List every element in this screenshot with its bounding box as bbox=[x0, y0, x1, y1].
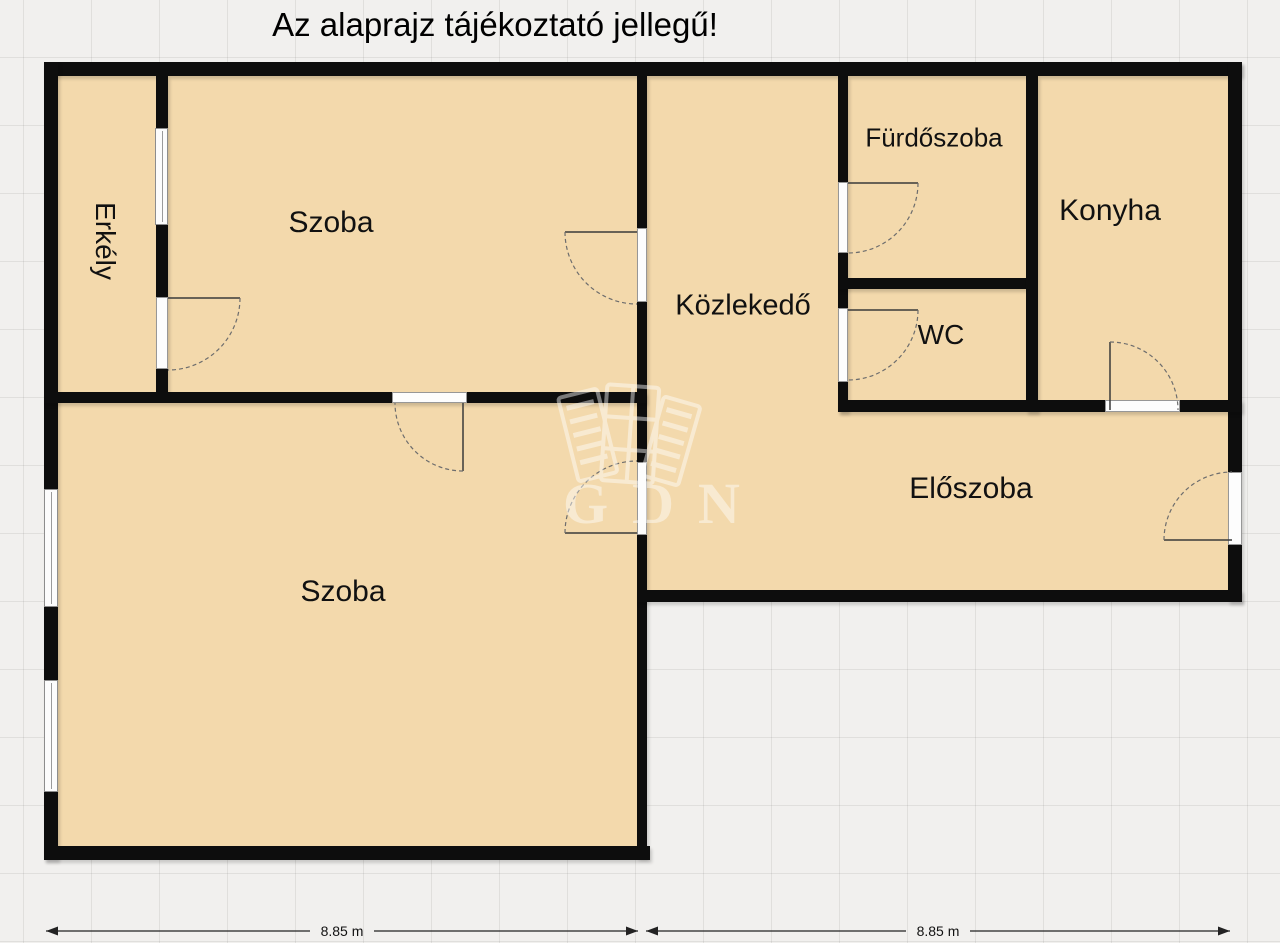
dimension-arrowheads bbox=[46, 927, 1230, 936]
door-threshold-szoba-mid bbox=[392, 392, 467, 403]
window-glass-line bbox=[162, 131, 163, 222]
arrow-left-icon bbox=[646, 927, 658, 936]
arrow-right-icon bbox=[626, 927, 638, 936]
door-threshold-erkely bbox=[156, 297, 168, 369]
wall-eloszoba-bottom bbox=[637, 590, 1242, 602]
wall-mid-horizontal bbox=[44, 392, 646, 403]
disclaimer-title: Az alaprajz tájékoztató jellegű! bbox=[272, 6, 718, 44]
door-threshold-szoba-top bbox=[637, 228, 647, 302]
wall-outer-top bbox=[44, 62, 1242, 76]
room-label-konyha: Konyha bbox=[1059, 194, 1161, 228]
arrow-left-icon bbox=[46, 927, 58, 936]
room-label-kozlekedo: Közlekedő bbox=[675, 290, 810, 323]
floorplan-canvas: Az alaprajz tájékoztató jellegű! Erkély … bbox=[0, 0, 1280, 943]
room-label-erkely: Erkély bbox=[89, 202, 121, 280]
window-erkely bbox=[155, 128, 168, 225]
dimension-label-left: 8.85 m bbox=[321, 923, 364, 939]
room-label-furdoszoba: Fürdőszoba bbox=[865, 123, 1002, 154]
door-threshold-konyha bbox=[1105, 400, 1180, 412]
room-label-wc: WC bbox=[918, 319, 965, 351]
window-szoba-left-2 bbox=[44, 680, 58, 792]
wall-bath-wc-divider bbox=[838, 278, 1026, 289]
door-threshold-furdoszoba bbox=[838, 182, 848, 253]
room-label-eloszoba: Előszoba bbox=[909, 472, 1032, 506]
door-threshold-szoba-bottom bbox=[637, 462, 647, 535]
room-label-szoba-bottom: Szoba bbox=[300, 575, 385, 609]
window-szoba-left-1 bbox=[44, 489, 58, 607]
door-threshold-entry bbox=[1228, 472, 1242, 545]
wall-bath-konyha bbox=[1026, 76, 1038, 412]
window-glass-line bbox=[51, 492, 52, 604]
window-glass-line bbox=[51, 683, 52, 789]
room-label-szoba-top: Szoba bbox=[288, 206, 373, 240]
apartment-fill-lower-room bbox=[44, 392, 647, 860]
wall-block-bottom bbox=[838, 400, 1242, 412]
wall-szoba-bottom bbox=[44, 846, 650, 860]
dimension-label-right: 8.85 m bbox=[917, 923, 960, 939]
door-threshold-wc bbox=[838, 308, 848, 382]
arrow-right-icon bbox=[1218, 927, 1230, 936]
